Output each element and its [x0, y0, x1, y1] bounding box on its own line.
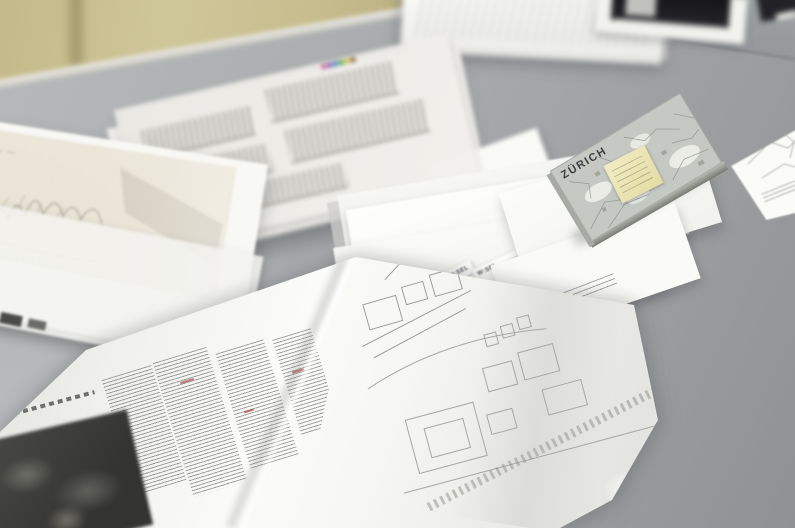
folded-plan-spread	[0, 250, 680, 528]
folded-sketch-sheet	[718, 112, 795, 220]
folded-spread-group	[0, 250, 680, 528]
page-curl-highlight	[596, 462, 670, 524]
photograph: W:SEL W:SEL W:SEL	[0, 0, 795, 528]
sketch-lines	[718, 112, 795, 220]
aerial-photo	[0, 410, 153, 528]
date-stamp-line	[5, 390, 95, 418]
